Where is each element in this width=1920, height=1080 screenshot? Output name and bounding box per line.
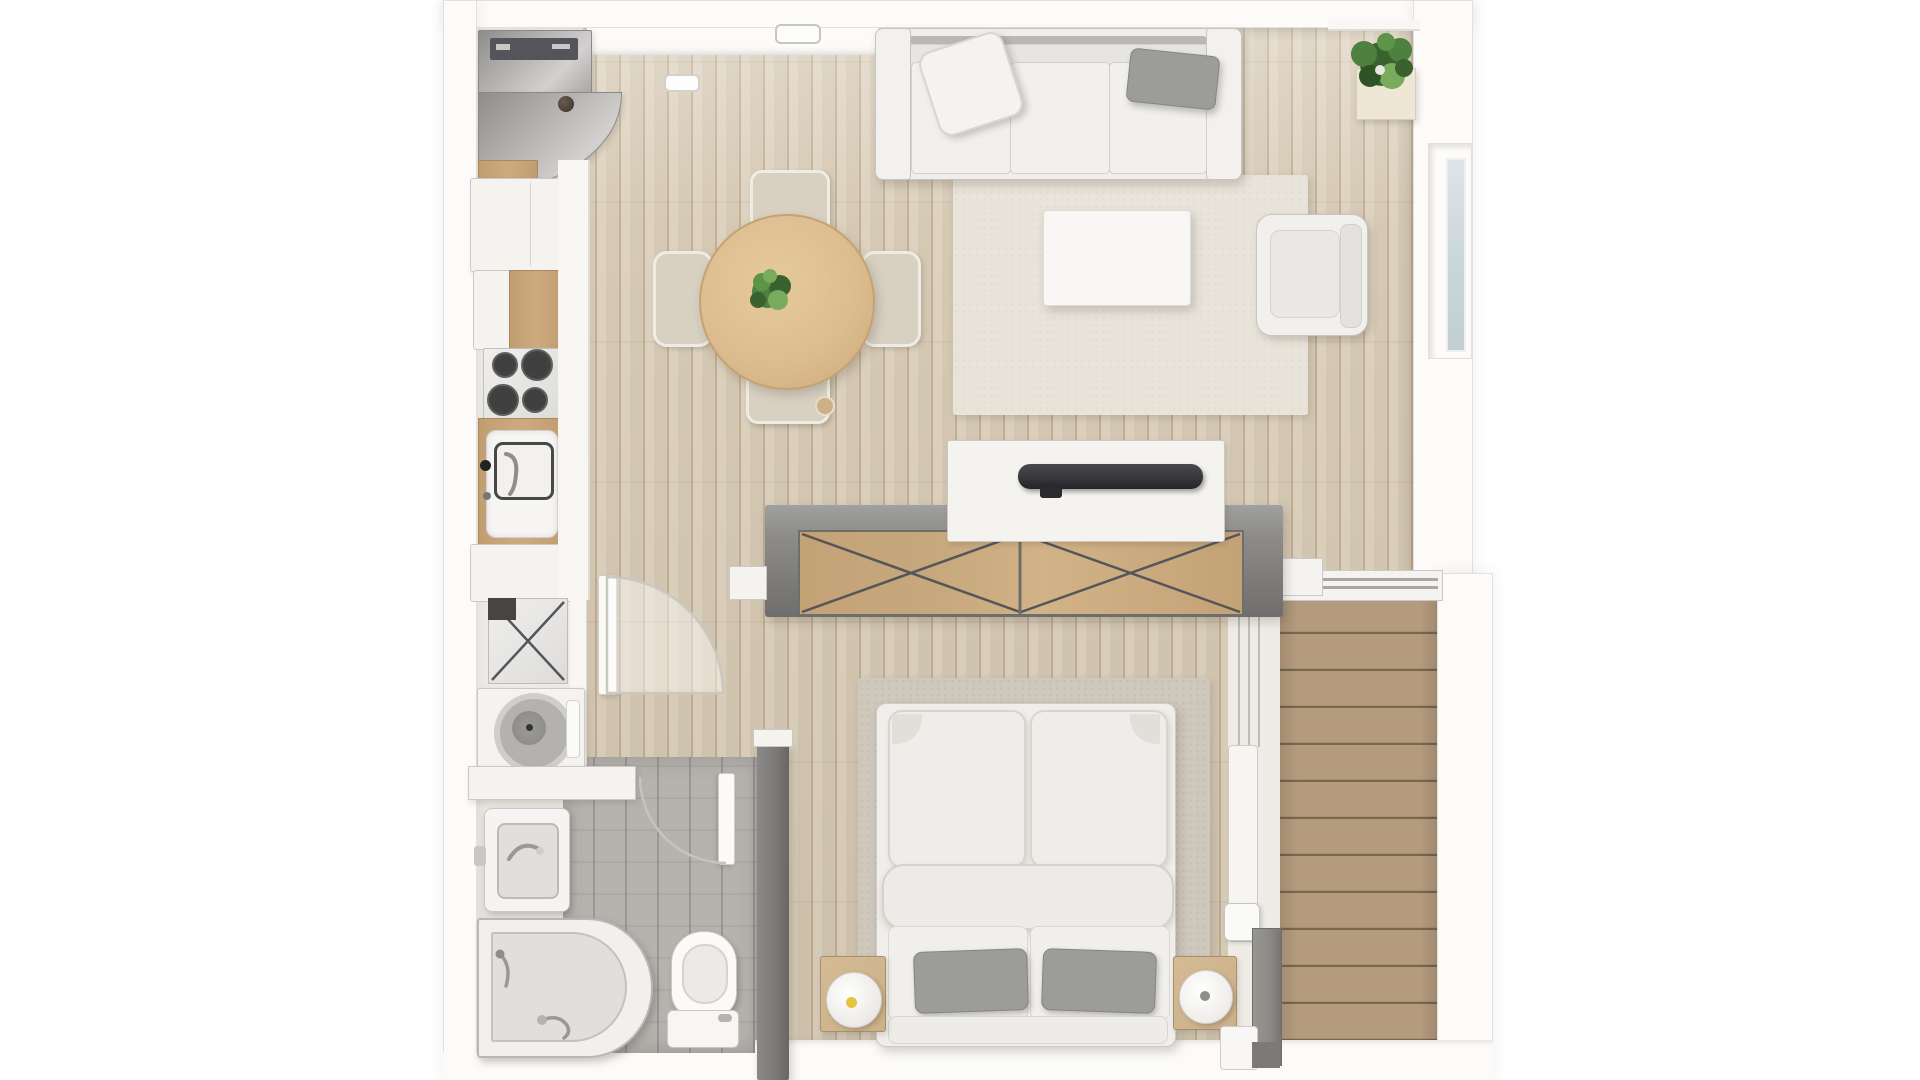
- burner-top-left: [492, 352, 518, 378]
- tv-sideboard: [947, 440, 1225, 542]
- hall-door-swing-arc: [595, 570, 731, 700]
- wardrobe-x-pattern: [800, 532, 1242, 614]
- window-glass: [1446, 158, 1466, 352]
- top-wall: [443, 0, 1473, 28]
- toilet-seat-inner: [682, 944, 728, 1004]
- sofa-gray-pillow: [1125, 47, 1220, 110]
- entry-cabinet-knob: [558, 96, 574, 112]
- counter-strip: [478, 160, 538, 180]
- left-wall: [443, 0, 477, 1080]
- sliding-door-bottom-stub: [1252, 1042, 1280, 1068]
- nightstand-lamp-yellow-dot: [846, 997, 857, 1008]
- bathroom-sink-faucet: [505, 833, 549, 877]
- armchair-seat: [1270, 230, 1340, 318]
- sofa-arm-left: [875, 28, 911, 180]
- bathroom-sink-tap: [474, 846, 486, 866]
- bed-pillow-left: [913, 948, 1029, 1014]
- curtain-rail: [1328, 20, 1420, 31]
- corner-potted-plant: [1334, 20, 1430, 124]
- railing-line-1: [1322, 578, 1438, 581]
- wardrobe-door-frame-notch: [729, 566, 767, 600]
- tv-stand-foot: [1040, 486, 1062, 498]
- balcony-deck: [1277, 597, 1441, 1040]
- bed-headboard-band: [888, 1016, 1168, 1044]
- tall-cabinet-seam: [530, 182, 531, 266]
- bathroom-door-swing-arc: [632, 770, 732, 870]
- burner-top-right: [521, 349, 553, 381]
- burner-bottom-right: [522, 387, 548, 413]
- right-wall-lower: [1437, 573, 1493, 1080]
- kitchen-side-panel: [558, 160, 590, 600]
- washer-center-dot: [526, 724, 533, 731]
- sliding-door-track-line-3: [1258, 597, 1260, 747]
- laundry-shelf: [468, 766, 636, 800]
- ceiling-light-entry: [664, 74, 700, 92]
- ceiling-light-living: [775, 24, 821, 44]
- bathtub-faucet: [534, 1010, 584, 1046]
- bathroom-partition-wall: [757, 743, 789, 1080]
- sliding-door-track-line-2: [1248, 597, 1250, 747]
- bed-duvet-fold: [882, 864, 1174, 930]
- toilet-flush-button: [718, 1014, 732, 1022]
- base-cabinet-wood: [509, 270, 563, 350]
- washer-door-hinge: [566, 700, 580, 758]
- faucet-knob-gray: [483, 492, 491, 500]
- armchair-back: [1340, 224, 1362, 328]
- faucet-knob-black: [480, 460, 491, 471]
- entry-wall-recess: [587, 28, 879, 55]
- floor-plan-stage: [0, 0, 1920, 1080]
- nightstand-speaker-dot: [1200, 991, 1210, 1001]
- partition-wall-cap: [753, 729, 793, 747]
- entry-cabinet-slot-clip-2: [552, 44, 570, 49]
- hamper-dark-patch: [488, 598, 516, 620]
- balcony-corner-post: [1277, 558, 1323, 596]
- sliding-door-track-line-1: [1238, 597, 1240, 747]
- entry-cabinet-slot-clip-1: [496, 44, 510, 50]
- chair-knob: [815, 396, 835, 416]
- sofa-seat-2: [1010, 62, 1110, 174]
- coffee-table: [1043, 210, 1191, 306]
- bathtub-shower-handle: [492, 946, 538, 996]
- kitchen-faucet: [496, 448, 536, 500]
- tall-cabinet: [470, 178, 562, 272]
- burner-bottom-left: [487, 384, 519, 416]
- wardrobe-wood-doors: [798, 530, 1244, 616]
- bed-pillow-right: [1041, 948, 1157, 1014]
- railing-line-2: [1322, 586, 1438, 589]
- dining-table-plant: [742, 262, 804, 324]
- base-cabinet-white: [473, 270, 511, 350]
